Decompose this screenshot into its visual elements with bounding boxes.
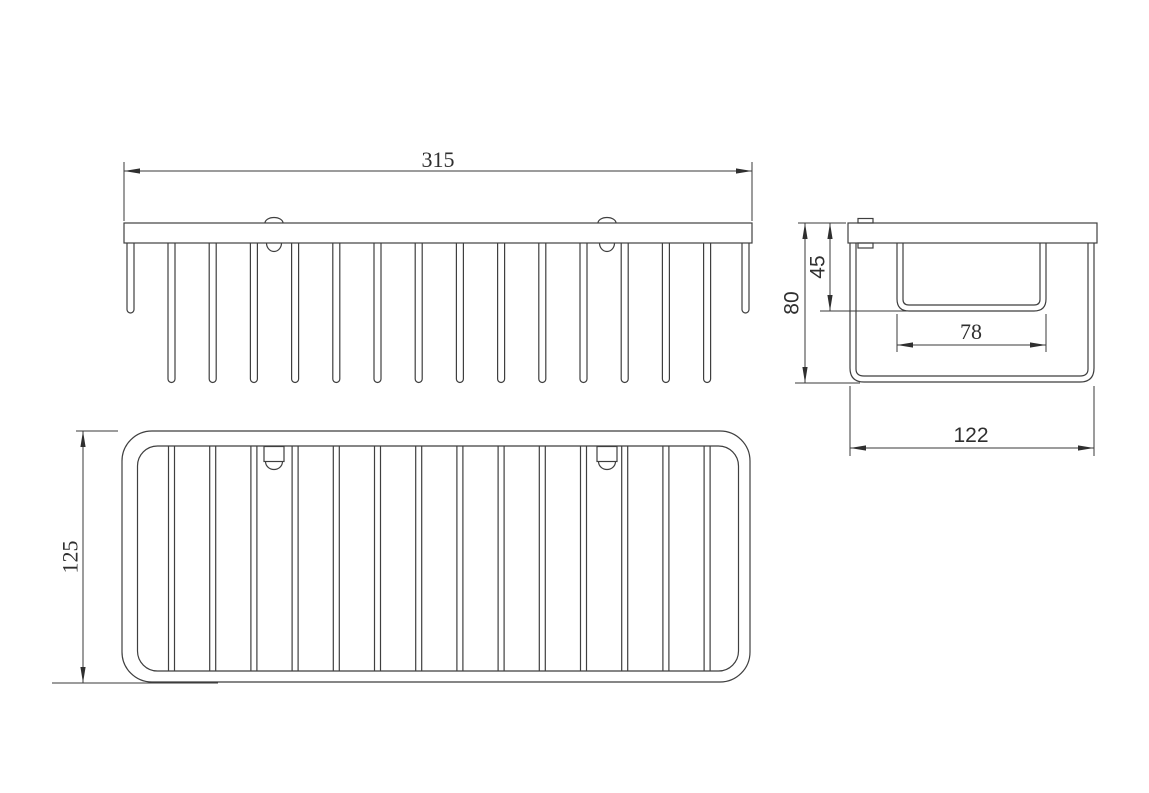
side-view: 80 45 78 122 [781, 219, 1098, 457]
side-inner-basket [897, 243, 1046, 311]
dim-label-side-width: 122 [953, 424, 988, 447]
plan-wires [169, 447, 711, 671]
dim-overall-height: 80 [781, 223, 861, 383]
technical-drawing-canvas: 315 [0, 0, 1149, 793]
dim-label-inner-width: 78 [960, 319, 982, 344]
dim-label-overall-height: 80 [781, 291, 804, 314]
plan-mount-hooks [264, 447, 617, 470]
front-view: 315 [124, 147, 752, 383]
side-outer-frame [850, 243, 1094, 382]
dim-overall-width: 315 [124, 147, 752, 221]
plan-inner-rim [138, 446, 739, 671]
dim-label-inner-depth: 45 [807, 255, 830, 278]
dim-inner-width: 78 [897, 314, 1046, 352]
side-rail [848, 223, 1097, 243]
front-rail [124, 223, 752, 243]
front-wires [127, 243, 749, 383]
dim-label-overall-depth: 125 [58, 541, 83, 574]
drawing-page: 315 [0, 0, 1149, 793]
dim-label-overall-width: 315 [422, 147, 455, 172]
plan-view: 125 [52, 431, 750, 683]
dim-side-width: 122 [850, 386, 1094, 456]
dim-overall-depth: 125 [52, 431, 218, 683]
